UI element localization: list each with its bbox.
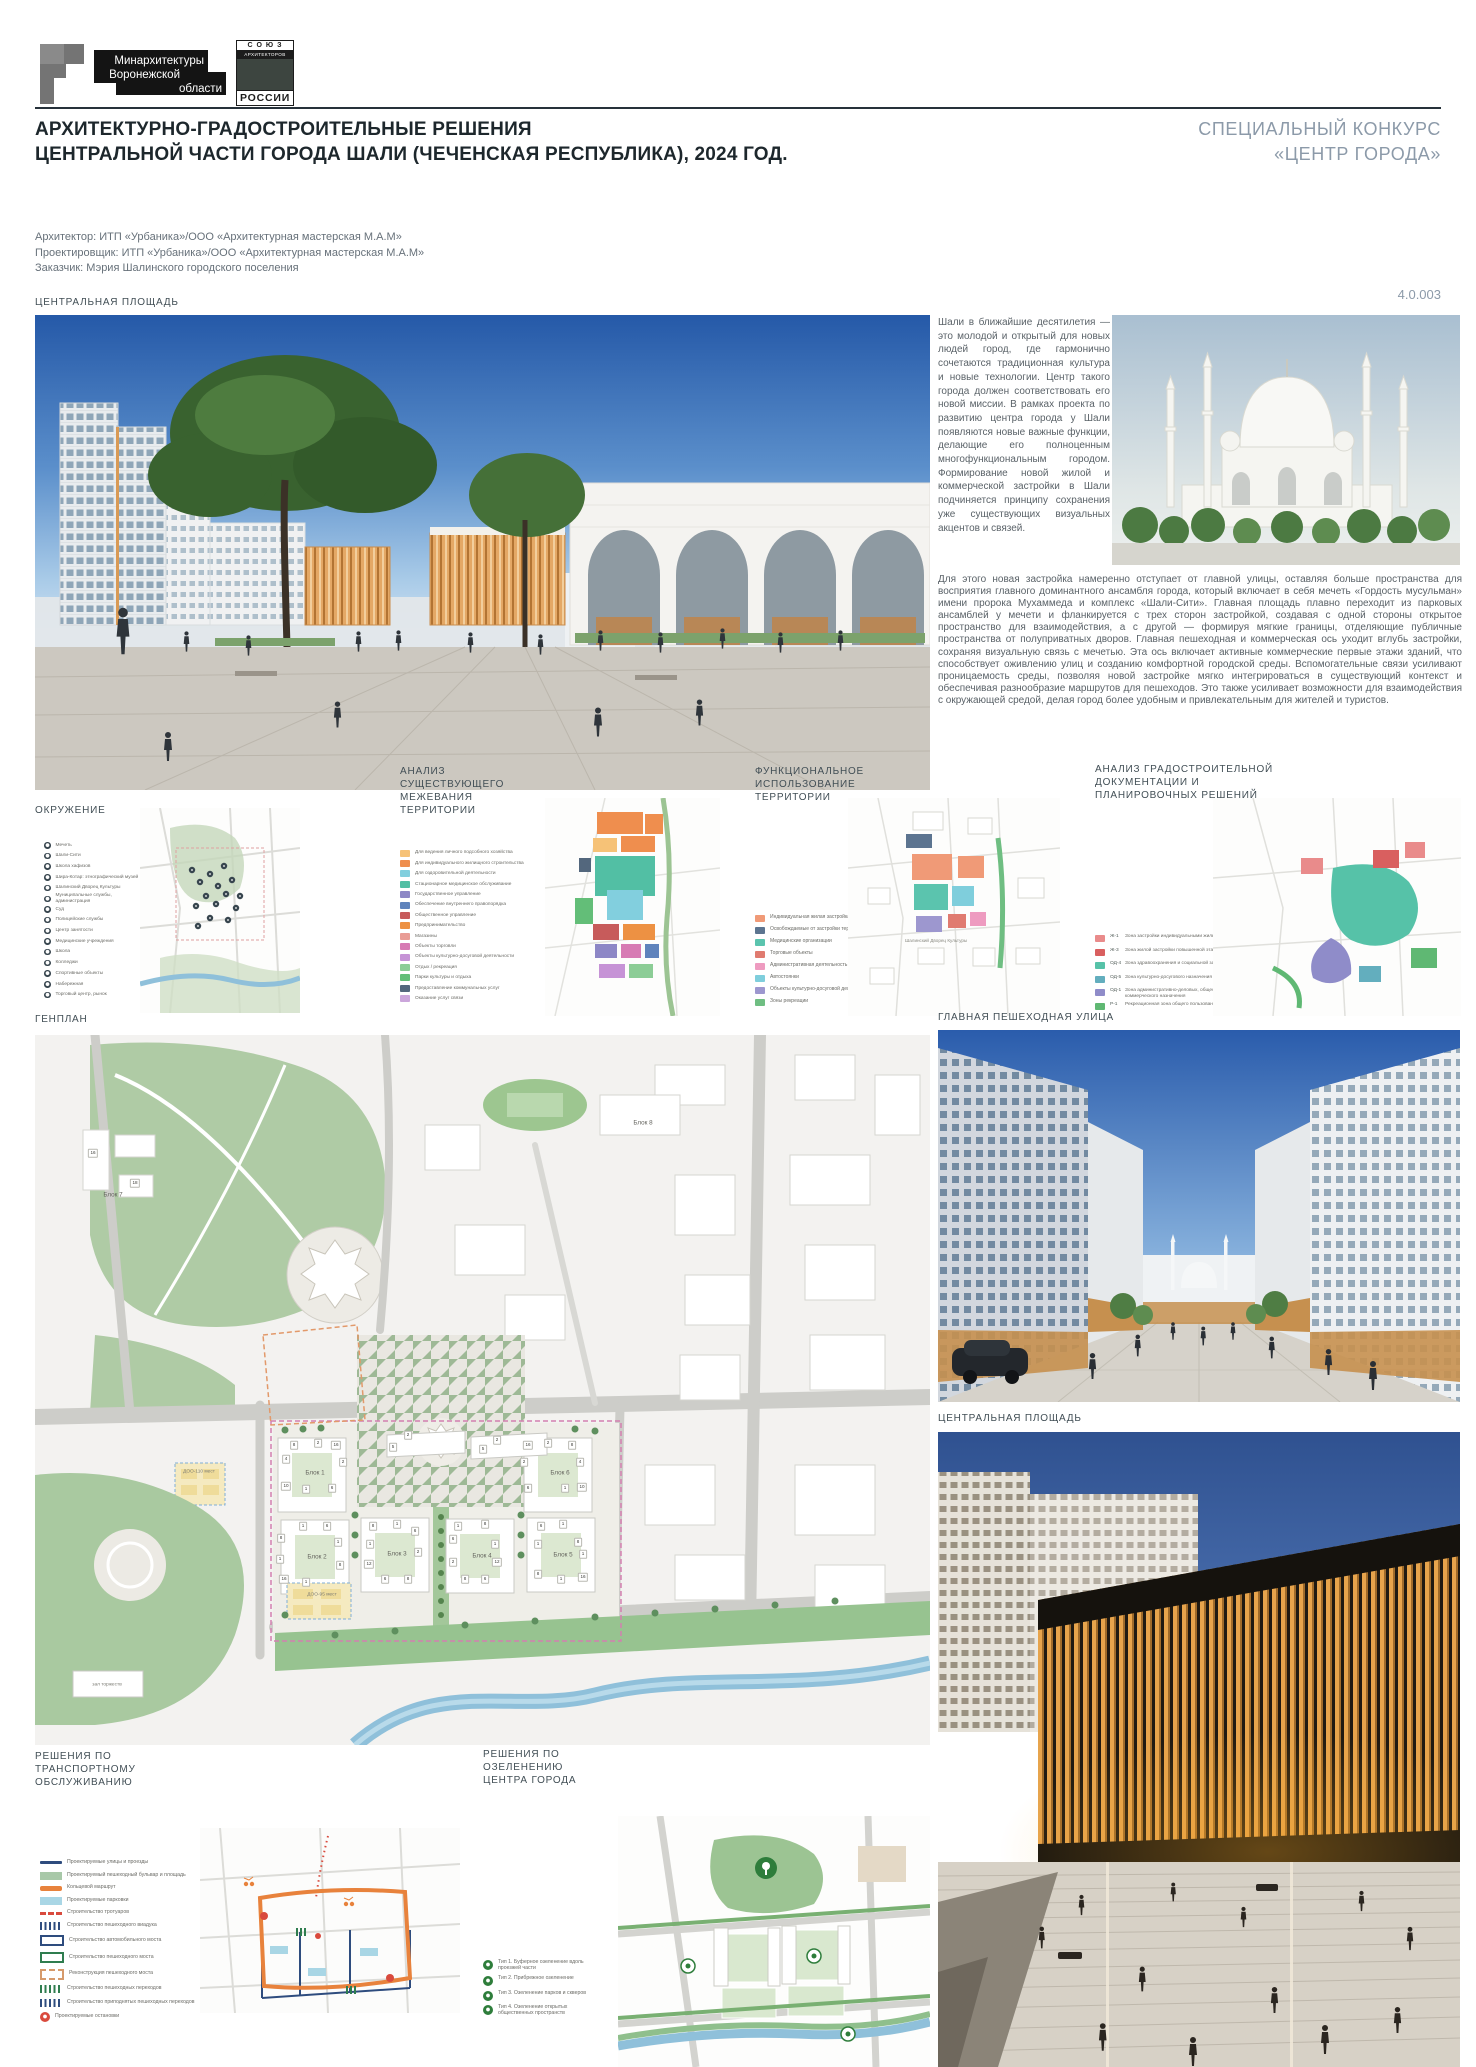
legend-item: Спортивные объекты <box>44 968 144 979</box>
map-label-palace-of-culture: Шалинский Дворец Культуры <box>905 938 967 943</box>
legend-label: Суд <box>56 907 65 913</box>
map-transport <box>200 1828 460 2013</box>
legend-label: Школа хафизов <box>56 864 91 870</box>
legend-surroundings: МечетьШали-СитиШкола хафизовШира-Котар: … <box>44 840 144 1000</box>
legend-swatch <box>40 1861 62 1864</box>
legend-swatch <box>400 850 410 857</box>
section-label-urban-docs: АНАЛИЗ ГРАДОСТРОИТЕЛЬНОЙ ДОКУМЕНТАЦИИ И … <box>1095 763 1275 802</box>
legend-swatch <box>1095 989 1105 996</box>
legend-label: Кольцевой маршрут <box>67 1885 116 1891</box>
legend-label: Строительство тротуаров <box>67 1910 129 1916</box>
credit-designer: Проектировщик: ИТП «Урбаника»/ООО «Архит… <box>35 246 735 262</box>
section-label-central-square: ЦЕНТРАЛЬНАЯ ПЛОЩАДЬ <box>35 296 179 309</box>
contest-name: СПЕЦИАЛЬНЫЙ КОНКУРС «ЦЕНТР ГОРОДА» <box>741 117 1441 167</box>
legend-label: Оказание услуг связи <box>415 996 463 1002</box>
legend-swatch <box>400 974 410 981</box>
map-surroundings <box>140 808 300 1013</box>
legend-swatch <box>44 949 51 956</box>
legend-item: Стационарное медицинское обслуживание <box>400 879 540 889</box>
legend-label: Государственное управление <box>415 892 481 898</box>
body-paragraph: Для этого новая застройка намеренно отст… <box>938 574 1462 707</box>
legend-code: ОД-1 <box>1110 988 1125 993</box>
legend-label: Общественное управление <box>415 913 476 919</box>
legend-swatch <box>400 933 410 940</box>
legend-code: Р-1 <box>1110 1002 1125 1007</box>
legend-swatch <box>400 964 410 971</box>
legend-swatch <box>40 1935 64 1946</box>
legend-label: Медицинские учреждения <box>56 939 114 945</box>
legend-swatch <box>483 2005 493 2015</box>
section-label-transport: РЕШЕНИЯ ПО ТРАНСПОРТНОМУ ОБСЛУЖИВАНИЮ <box>35 1750 175 1789</box>
legend-label: Строительство пешеходного моста <box>69 1955 154 1961</box>
board-title-line2: ЦЕНТРАЛЬНОЙ ЧАСТИ ГОРОДА ШАЛИ (ЧЕЧЕНСКАЯ… <box>35 142 795 167</box>
legend-item: Государственное управление <box>400 890 540 900</box>
legend-label: Проектируемые парковки <box>67 1898 129 1904</box>
render-central-square-evening <box>938 1432 1460 2067</box>
legend-label: Предпринимательство <box>415 923 465 929</box>
legend-swatch <box>40 1912 62 1915</box>
board-title-line1: АРХИТЕКТУРНО-ГРАДОСТРОИТЕЛЬНЫЕ РЕШЕНИЯ <box>35 117 795 142</box>
legend-swatch <box>400 860 410 867</box>
legend-item: Колледжи <box>44 958 144 969</box>
legend-swatch <box>44 960 51 967</box>
legend-swatch <box>40 1985 62 1993</box>
legend-item: Парки культуры и отдыха <box>400 973 540 983</box>
legend-label: Обеспечение внутреннего правопорядка <box>415 902 506 908</box>
ministry-logo-line: Минархитектуры <box>114 55 204 67</box>
architects-union-logo: С О Ю З АРХИТЕКТОРОВ РОССИИ <box>236 40 294 106</box>
legend-swatch <box>44 970 51 977</box>
render-main-street <box>938 1030 1460 1402</box>
legend-item: Объекты торговли <box>400 942 540 952</box>
legend-swatch <box>755 975 765 982</box>
legend-swatch <box>400 985 410 992</box>
legend-item: Строительство приподнятых пешеходных пер… <box>40 1999 205 2007</box>
legend-item: Шали-Сити <box>44 851 144 862</box>
legend-label: Набережная <box>56 982 84 988</box>
legend-label: Шира-Котар: этнографический музей <box>56 875 139 881</box>
legend-label: Проектируемые улицы и проезды <box>67 1860 148 1866</box>
legend-code: Ж-1 <box>1110 934 1125 939</box>
legend-label: Парки культуры и отдыха <box>415 975 471 981</box>
legend-swatch <box>44 853 51 860</box>
render-central-square-day <box>35 315 930 790</box>
contest-line1: СПЕЦИАЛЬНЫЙ КОНКУРС <box>741 117 1441 142</box>
legend-label: Административная деятельность <box>770 963 847 969</box>
legend-swatch <box>40 1897 62 1905</box>
legend-item: Набережная <box>44 979 144 990</box>
legend-label: Отдых / рекреация <box>415 965 457 971</box>
legend-item: Предоставление коммунальных услуг <box>400 983 540 993</box>
legend-label: Полицейские службы <box>56 917 104 923</box>
ministry-logo: Минархитектуры Воронежской области <box>38 42 238 106</box>
legend-transport: Проектируемые улицы и проездыПроектируем… <box>40 1860 205 2028</box>
legend-item: Обеспечение внутреннего правопорядка <box>400 900 540 910</box>
legend-label: Торговые объекты <box>770 951 813 957</box>
union-logo-bottom: РОССИИ <box>237 90 293 105</box>
legend-swatch <box>755 987 765 994</box>
union-logo-top: С О Ю З <box>237 41 293 51</box>
legend-item: Школа хафизов <box>44 861 144 872</box>
legend-swatch <box>40 1886 62 1891</box>
legend-item: Магазины <box>400 931 540 941</box>
legend-swatch <box>755 963 765 970</box>
legend-swatch <box>755 951 765 958</box>
legend-swatch <box>755 939 765 946</box>
section-label-surroundings: ОКРУЖЕНИЕ <box>35 804 145 817</box>
legend-swatch <box>40 1999 62 2007</box>
legend-item: Кольцевой маршрут <box>40 1885 205 1891</box>
section-label-greening: РЕШЕНИЯ ПО ОЗЕЛЕНЕНИЮ ЦЕНТРА ГОРОДА <box>483 1748 608 1787</box>
legend-swatch <box>40 1952 64 1963</box>
legend-item: Мечеть <box>44 840 144 851</box>
legend-swatch <box>1095 935 1105 942</box>
section-label-parceling: АНАЛИЗ СУЩЕСТВУЮЩЕГО МЕЖЕВАНИЯ ТЕРРИТОРИ… <box>400 765 515 817</box>
ministry-logo-line: области <box>179 83 222 95</box>
legend-label: Шалинский Дворец Культуры <box>56 885 121 891</box>
legend-label: Тип 3. Озеленение парков и скверов <box>498 1991 590 1997</box>
legend-swatch <box>44 896 51 903</box>
legend-label: Торговый центр, рынок <box>56 992 107 998</box>
legend-swatch <box>400 912 410 919</box>
legend-swatch <box>400 870 410 877</box>
legend-item: Строительство пешеходного моста <box>40 1952 205 1963</box>
legend-swatch <box>400 995 410 1002</box>
legend-item: Торговый центр, рынок <box>44 990 144 1001</box>
legend-swatch <box>40 1922 62 1930</box>
legend-label: Медицинские организации <box>770 939 832 945</box>
legend-swatch <box>1095 976 1105 983</box>
legend-item: Для оздоровительной деятельности <box>400 869 540 879</box>
arched-gallery <box>570 483 930 645</box>
existing-zone <box>858 1846 906 1882</box>
legend-item: Для индивидуального жилищного строительс… <box>400 858 540 868</box>
legend-swatch <box>400 902 410 909</box>
legend-label: Мечеть <box>56 843 72 849</box>
legend-label: Для индивидуального жилищного строительс… <box>415 861 524 867</box>
legend-label: Строительство приподнятых пешеходных пер… <box>67 2000 194 2006</box>
legend-item: Предпринимательство <box>400 921 540 931</box>
legend-label: Колледжи <box>56 960 78 966</box>
legend-parceling: Для ведения личного подсобного хозяйства… <box>400 848 540 1004</box>
legend-swatch <box>1095 962 1105 969</box>
map-urban-docs <box>1213 798 1461 1016</box>
ministry-logo-line: Воронежской <box>109 69 180 81</box>
legend-item: Строительство тротуаров <box>40 1910 205 1916</box>
legend-item: Проектируемые улицы и проезды <box>40 1860 205 1866</box>
legend-label: Магазины <box>415 934 437 940</box>
legend-swatch <box>40 1872 62 1880</box>
legend-swatch <box>44 917 51 924</box>
legend-code: ОД-5 <box>1110 975 1125 980</box>
genplan-map <box>35 1035 930 1745</box>
legend-label: Стационарное медицинское обслуживание <box>415 882 511 888</box>
legend-item: Шалинский Дворец Культуры <box>44 883 144 894</box>
board-title: АРХИТЕКТУРНО-ГРАДОСТРОИТЕЛЬНЫЕ РЕШЕНИЯ Ц… <box>35 117 795 167</box>
sheet-number: 4.0.003 <box>1141 287 1441 302</box>
legend-label: Зоны рекреации <box>770 999 808 1005</box>
legend-swatch <box>755 927 765 934</box>
legend-item: Тип 1. Буферное озеленение вдоль проезже… <box>483 1960 603 1972</box>
legend-item: Школа <box>44 947 144 958</box>
intro-paragraph: Шали в ближайшие десятилетия — это молод… <box>938 316 1110 535</box>
legend-swatch <box>755 999 765 1006</box>
legend-swatch <box>1095 949 1105 956</box>
legend-item: Строительство автомобильного моста <box>40 1935 205 1946</box>
legend-item: Для ведения личного подсобного хозяйства <box>400 848 540 858</box>
legend-swatch <box>400 954 410 961</box>
legend-swatch <box>44 938 51 945</box>
legend-label: Реконструкция пешеходного моста <box>69 1971 153 1977</box>
legend-item: Оказание услуг связи <box>400 993 540 1003</box>
legend-item: Суд <box>44 904 144 915</box>
legend-label: Тип 4. Озеленение открытых общественных … <box>498 2005 590 2017</box>
legend-item: Медицинские учреждения <box>44 936 144 947</box>
legend-swatch <box>400 943 410 950</box>
legend-swatch <box>40 2012 50 2022</box>
legend-swatch <box>40 1969 64 1980</box>
legend-label: Строительство автомобильного моста <box>69 1938 161 1944</box>
photo-mosque <box>1112 315 1460 565</box>
legend-item: Проектируемые парковки <box>40 1897 205 1905</box>
legend-label: Строительство пешеходных переходов <box>67 1986 161 1992</box>
legend-item: Шира-Котар: этнографический музей <box>44 872 144 883</box>
legend-item: Общественное управление <box>400 910 540 920</box>
legend-label: Индивидуальная жилая застройка <box>770 915 850 921</box>
section-label-genplan: ГЕНПЛАН <box>35 1013 88 1026</box>
map-parceling <box>545 798 720 1016</box>
legend-item: Полицейские службы <box>44 915 144 926</box>
legend-swatch <box>44 981 51 988</box>
legend-label: Шали-Сити <box>56 853 81 859</box>
legend-swatch <box>400 891 410 898</box>
legend-code: Ж-3 <box>1110 948 1125 953</box>
legend-swatch <box>400 881 410 888</box>
legend-item: Тип 4. Озеленение открытых общественных … <box>483 2005 603 2017</box>
legend-swatch <box>1095 1003 1105 1010</box>
legend-label: Объекты культурно-досуговой деятельности <box>415 954 514 960</box>
legend-item: Центр занятости <box>44 926 144 937</box>
legend-swatch <box>44 928 51 935</box>
legend-label: Для оздоровительной деятельности <box>415 871 496 877</box>
legend-label: Объекты торговли <box>415 944 456 950</box>
legend-item: Строительство пешеходных переходов <box>40 1985 205 1993</box>
legend-item: Отдых / рекреация <box>400 962 540 972</box>
legend-item: Тип 3. Озеленение парков и скверов <box>483 1991 603 2001</box>
section-label-main-street: ГЛАВНАЯ ПЕШЕХОДНАЯ УЛИЦА <box>938 1011 1114 1024</box>
contest-line2: «ЦЕНТР ГОРОДА» <box>741 142 1441 167</box>
legend-swatch <box>44 906 51 913</box>
map-greening <box>618 1816 930 2067</box>
legend-swatch <box>400 922 410 929</box>
credit-client: Заказчик: Мэрия Шалинского городского по… <box>35 261 735 277</box>
credits: Архитектор: ИТП «Урбаника»/ООО «Архитект… <box>35 230 735 277</box>
legend-label: Тип 1. Буферное озеленение вдоль проезже… <box>498 1960 590 1972</box>
competition-board: Минархитектуры Воронежской области С О Ю… <box>0 0 1476 2067</box>
legend-swatch <box>44 874 51 881</box>
legend-code: ОД-4 <box>1110 961 1125 966</box>
legend-label: Строительство пешеходного виадука <box>67 1923 157 1929</box>
credit-architect: Архитектор: ИТП «Урбаника»/ООО «Архитект… <box>35 230 735 246</box>
legend-swatch <box>44 863 51 870</box>
legend-swatch <box>483 1960 493 1970</box>
map-functional <box>848 798 1060 1016</box>
legend-label: Автостоянки <box>770 975 799 981</box>
background-building <box>938 1472 1030 1732</box>
legend-label: Муниципальные службы, администрация <box>56 893 145 904</box>
legend-label: Для ведения личного подсобного хозяйства <box>415 850 513 856</box>
legend-item: Тип 2. Прибрежное озеленение <box>483 1976 603 1986</box>
legend-swatch <box>483 1991 493 2001</box>
legend-label: Проектируемый пешеходный бульвар и площа… <box>67 1873 186 1879</box>
legend-item: Проектируемый пешеходный бульвар и площа… <box>40 1872 205 1880</box>
section-label-central-square-2: ЦЕНТРАЛЬНАЯ ПЛОЩАДЬ <box>938 1412 1082 1425</box>
legend-label: Школа <box>56 949 71 955</box>
legend-swatch <box>483 1976 493 1986</box>
legend-greening: Тип 1. Буферное озеленение вдоль проезже… <box>483 1960 603 2022</box>
legend-swatch <box>44 842 51 849</box>
legend-label: Тип 2. Прибрежное озеленение <box>498 1976 590 1982</box>
legend-label: Спортивные объекты <box>56 971 104 977</box>
union-logo-mid: АРХИТЕКТОРОВ <box>237 51 293 59</box>
header-divider <box>35 107 1441 109</box>
legend-label: Предоставление коммунальных услуг <box>415 986 500 992</box>
legend-item: Строительство пешеходного виадука <box>40 1922 205 1930</box>
legend-label: Центр занятости <box>56 928 93 934</box>
union-logo-emblem <box>237 59 293 91</box>
legend-label: Проектируемые остановки <box>55 2014 119 2020</box>
legend-swatch <box>44 885 51 892</box>
legend-item: Муниципальные службы, администрация <box>44 893 144 904</box>
legend-swatch <box>755 915 765 922</box>
legend-item: Реконструкция пешеходного моста <box>40 1969 205 1980</box>
legend-swatch <box>44 992 51 999</box>
legend-item: Проектируемые остановки <box>40 2012 205 2022</box>
legend-item: Объекты культурно-досуговой деятельности <box>400 952 540 962</box>
